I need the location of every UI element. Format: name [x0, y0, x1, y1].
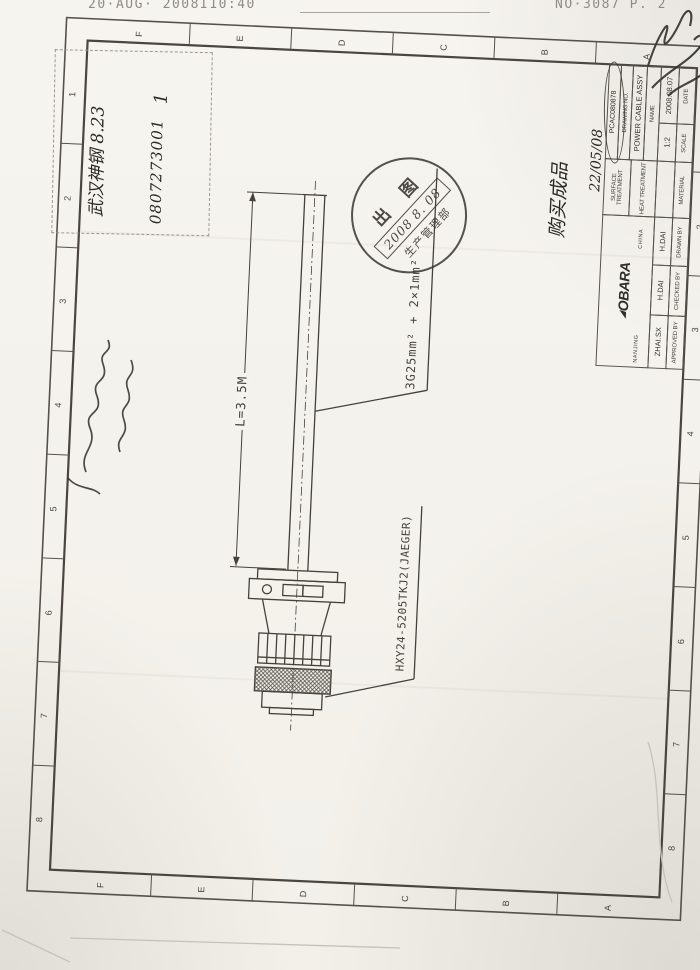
approved-by-value: ZHAI.SX [647, 314, 668, 369]
grid-number-left: 8 [35, 817, 44, 822]
obara-logo-mark: ◢ [618, 312, 627, 318]
customer-note: 武汉神钢 8.23 [89, 106, 108, 218]
grid-letter-bottom: A [604, 905, 613, 911]
scale-value: 1:2 [657, 123, 678, 163]
grid-number-left: 4 [54, 403, 63, 408]
heat-treatment-label: HEAT TREATMENT [628, 159, 658, 217]
grid-letter-bottom: D [299, 891, 308, 898]
purchase-note: 购买成品 [548, 162, 570, 239]
grid-number-right: 4 [686, 431, 695, 436]
grid-number-left: 2 [63, 195, 72, 200]
grid-number-right: 5 [682, 535, 691, 540]
connector-outline [243, 568, 345, 716]
scale-label: SCALE [675, 123, 695, 163]
grid-letter-bottom: F [96, 882, 105, 888]
grid-number-right: 3 [691, 328, 700, 333]
grid-letter-top: F [135, 31, 144, 37]
company-country: CHINA [638, 229, 645, 249]
grid-letter-top: B [541, 49, 550, 55]
quantity-mark: 1 [153, 93, 171, 105]
grid-letter-bottom: C [401, 895, 410, 902]
drawn-by-label: DRAWN BY [670, 217, 690, 267]
fax-header-underline [300, 12, 490, 13]
grid-letter-top: D [338, 39, 347, 46]
purchase-date-note: 22/05/08 [588, 129, 605, 192]
surface-treatment-label: SURFACE TREATMENT [602, 158, 632, 216]
grid-letter-top: A [642, 54, 651, 60]
grid-number-right: 7 [672, 742, 681, 747]
grid-number-right: 2 [696, 224, 700, 229]
grid-letter-bottom: E [198, 886, 207, 892]
cable-right-edge [308, 195, 325, 571]
grid-number-left: 1 [68, 92, 77, 97]
grid-number-left: 6 [45, 610, 54, 615]
drawing-no-value: PCAC080878 [605, 64, 622, 159]
company-city: NANJING [633, 334, 640, 363]
fax-header-right: NO·3087 P. 2 [555, 0, 667, 12]
obara-logo: ◢OBARA [614, 248, 634, 333]
drawing-sheet: L=3.5M 3G25mm² + 2×1mm² HXY24-5205TKJ2(J… [14, 7, 700, 953]
grid-number-right: 6 [677, 639, 686, 644]
scanned-drawing-page: 20·AUG· 2008I10:40 NO·3087 P. 2 [0, 0, 700, 970]
grid-letter-top: E [236, 35, 245, 41]
grid-letter-bottom: B [502, 900, 511, 906]
checked-by-value: H.DAI [650, 264, 671, 316]
checked-by-label: CHECKED BY [668, 265, 688, 317]
grid-letter-top: C [439, 44, 448, 51]
grid-number-right: 8 [667, 846, 676, 851]
cable-length-label: L=3.5M [234, 373, 249, 431]
drawn-by-value: H.DAI [652, 216, 673, 266]
obara-logo-text: OBARA [615, 262, 633, 312]
material-value [654, 160, 676, 218]
handwritten-note-box: 武汉神钢 8.23 0807273001 1 [51, 49, 213, 236]
date-value: 2008.08.07 [658, 67, 680, 125]
grid-number-left: 3 [59, 299, 68, 304]
order-number-note: 0807273001 [148, 119, 165, 225]
cable-left-edge [288, 195, 305, 571]
title-block: APPROVED BY CHECKED BY DRAWN BY MATERIAL… [595, 64, 697, 370]
company-band: NANJING ◢OBARA CHINA [595, 214, 655, 368]
grid-number-left: 5 [49, 506, 58, 511]
grid-number-left: 7 [40, 713, 49, 718]
title-block-table: APPROVED BY CHECKED BY DRAWN BY MATERIAL… [595, 64, 697, 370]
